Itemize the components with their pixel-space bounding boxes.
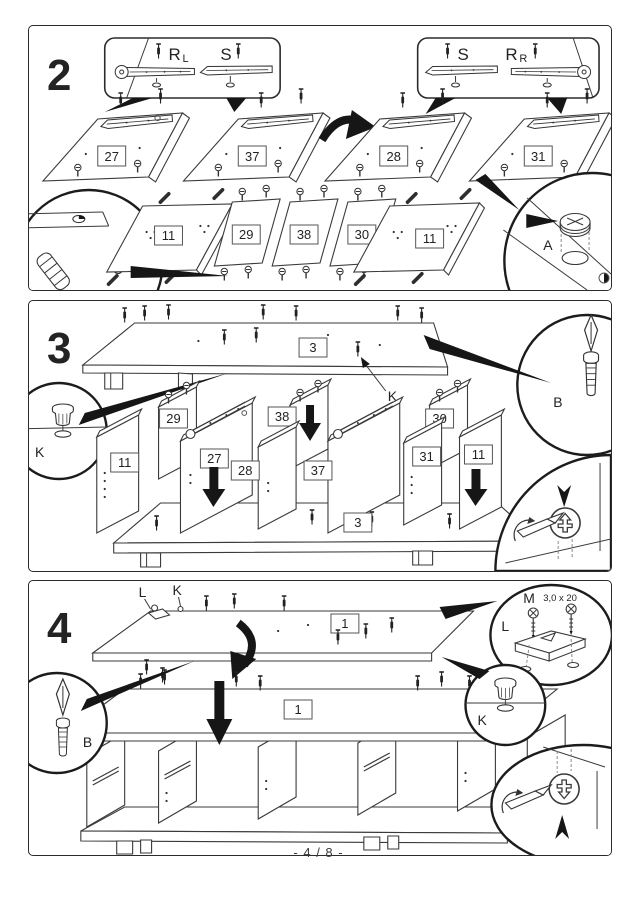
detail-letter-k: K bbox=[477, 712, 487, 728]
dowel-icon bbox=[461, 190, 469, 198]
divider-panel-38: 38 bbox=[272, 185, 338, 280]
cam-symbol-icon bbox=[549, 774, 579, 804]
detail-callout-a: A bbox=[475, 173, 611, 290]
side-panel-37: 37 bbox=[183, 89, 329, 182]
dowel-icon bbox=[413, 274, 421, 282]
part-label: 3 bbox=[309, 340, 316, 355]
arrow-down bbox=[306, 405, 314, 425]
label-rail-r-left: R bbox=[169, 45, 181, 64]
part-label: 1 bbox=[294, 702, 301, 717]
part-label: 29 bbox=[239, 227, 253, 242]
step3-panel: 3 3 K B K bbox=[28, 300, 612, 572]
arrow-down bbox=[209, 467, 218, 491]
arrow-down bbox=[471, 469, 480, 491]
label-rail-r-right: R bbox=[505, 45, 517, 64]
part-label: 31 bbox=[419, 449, 433, 464]
part-label: 38 bbox=[275, 409, 289, 424]
part-label: 11 bbox=[472, 447, 485, 462]
page-number: - 4 / 8 - bbox=[0, 845, 637, 860]
detail-callout-b: B bbox=[517, 315, 611, 455]
fitting-label-l: L bbox=[139, 584, 147, 600]
detail-cam-tighten bbox=[495, 455, 611, 571]
part-label: 11 bbox=[118, 455, 131, 470]
detail-cam-tighten bbox=[491, 745, 611, 855]
pointer-triangle bbox=[226, 98, 246, 112]
step4-figure: 4 1 L K bbox=[29, 581, 611, 855]
part-label: 27 bbox=[105, 149, 119, 164]
part-label: 37 bbox=[245, 149, 259, 164]
part-label: 37 bbox=[311, 463, 325, 478]
detail-letter-m: M bbox=[523, 590, 535, 606]
step4-number: 4 bbox=[47, 604, 72, 653]
detail-letter-k: K bbox=[35, 444, 45, 460]
step4-top-panel: 1 L K bbox=[93, 582, 474, 683]
fitting-label-k: K bbox=[173, 582, 183, 598]
step2-figure: 2 R L S S R R bbox=[29, 26, 611, 290]
label-rail-s-left: S bbox=[220, 45, 231, 64]
step4-panel: 4 1 L K bbox=[28, 580, 612, 856]
screw-spec: 3,0 x 20 bbox=[543, 593, 577, 604]
part-label: 38 bbox=[297, 227, 311, 242]
dowel-icon bbox=[160, 194, 168, 202]
detail-callout-k: K bbox=[29, 383, 107, 479]
label-rail-s-right: S bbox=[458, 45, 469, 64]
detail-letter-a: A bbox=[543, 237, 553, 253]
part-label: 3 bbox=[354, 515, 361, 530]
dowel-icon bbox=[407, 194, 415, 202]
step3-number: 3 bbox=[47, 324, 71, 373]
rail-callout-right: S R R bbox=[418, 38, 599, 114]
part-label: 28 bbox=[387, 149, 401, 164]
divider-panel-29: 29 bbox=[214, 185, 280, 280]
fitting-label-l: L bbox=[501, 618, 509, 634]
part-label: 1 bbox=[341, 616, 348, 631]
part-label: 27 bbox=[207, 451, 221, 466]
part-label: 30 bbox=[355, 227, 369, 242]
pointer-triangle bbox=[442, 657, 490, 679]
step3-figure: 3 3 K B K bbox=[29, 301, 611, 571]
cam-lock-icon bbox=[560, 214, 590, 237]
dowel-icon bbox=[356, 276, 364, 284]
label-rail-r-right-sub: R bbox=[519, 53, 527, 65]
step3-base-top: 3 K bbox=[83, 305, 448, 404]
pointer-triangle bbox=[547, 98, 567, 114]
part-label: 29 bbox=[166, 411, 180, 426]
detail-letter-b: B bbox=[83, 734, 92, 750]
pointer-triangle bbox=[426, 98, 456, 114]
label-rail-r-left-sub: L bbox=[182, 53, 188, 65]
pointer-triangle bbox=[105, 98, 153, 112]
dowel-icon bbox=[214, 190, 222, 198]
side-panel-27: 27 bbox=[43, 89, 189, 182]
step2-number: 2 bbox=[47, 51, 71, 100]
part-label: 31 bbox=[531, 149, 545, 164]
arrow-down bbox=[214, 681, 224, 721]
detail-letter-b: B bbox=[553, 394, 562, 410]
part-label: 28 bbox=[238, 463, 252, 478]
side-panel-31: 31 bbox=[469, 89, 611, 182]
step2-panel: 2 R L S S R R bbox=[28, 25, 612, 291]
cam-hole-icon bbox=[562, 252, 588, 265]
part-label: 11 bbox=[162, 228, 175, 243]
part-label: 11 bbox=[423, 231, 436, 246]
rail-callout-left: R L S bbox=[105, 38, 280, 112]
